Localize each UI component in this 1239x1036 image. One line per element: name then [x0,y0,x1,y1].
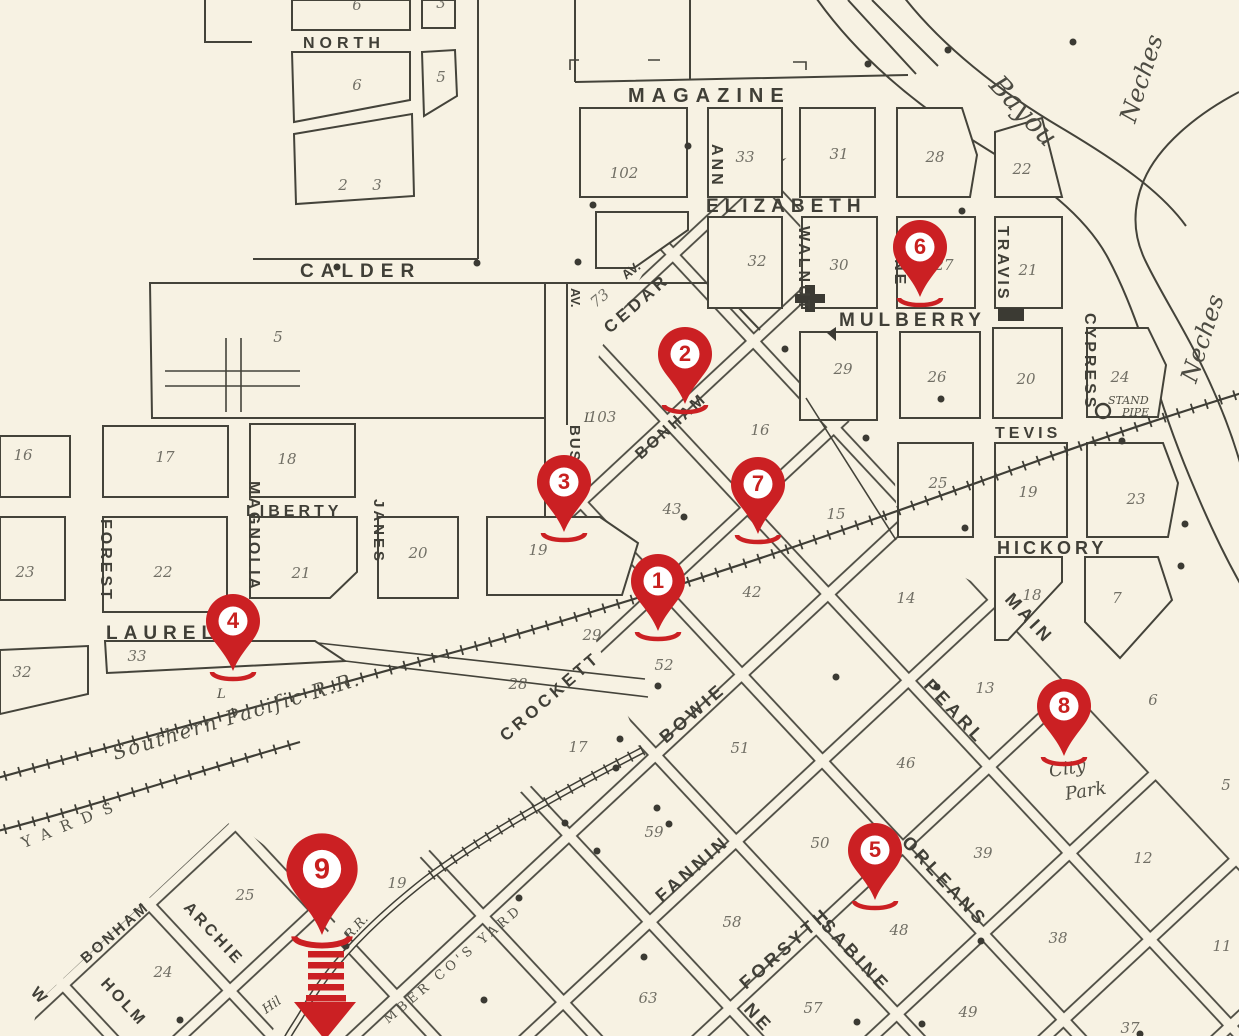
block-number: 3 [372,176,382,194]
block-number: 5 [273,328,283,346]
street-label-elizabeth: ELIZABETH [706,196,867,217]
block-number: 29 [581,626,602,644]
block-number: 18 [277,450,296,468]
map-dot [516,895,523,902]
svg-text:2: 2 [679,341,691,366]
block-number: 17 [568,738,588,756]
map-dot [562,820,569,827]
street-label-north: NORTH [303,35,385,52]
street-label-mulberry: MULBERRY [839,310,986,331]
map-dot [177,1017,184,1024]
map-dot [641,954,648,961]
block-number: 23 [14,563,34,581]
map-dot [945,47,952,54]
street-label-ann: ANN [708,144,725,188]
street-label-travis: TRAVIS [994,226,1011,301]
block-number: 7 [1112,589,1122,607]
block-number: 52 [654,656,673,674]
map-dot [655,683,662,690]
block-number: 59 [644,823,664,841]
street-label-bush-av: AV. [568,288,583,308]
block-number: 50 [810,834,830,852]
map-dot [959,208,966,215]
block-number: 30 [829,256,849,274]
block-number: 15 [826,505,845,523]
map-canvas[interactable]: NORTH CALDER MAGAZINE ELIZABETH MULBERRY… [0,0,1239,1036]
block-number: 21 [290,564,310,582]
block-number: 43 [661,500,681,518]
street-label-walnut: WALNUT [795,226,812,312]
map-dot [854,1019,861,1026]
map-dot [474,260,481,267]
map-dot [1070,39,1077,46]
svg-text:4: 4 [227,608,240,633]
street-label-hickory: HICKORY [997,538,1107,558]
map-dot [934,684,941,691]
map-dot [782,346,789,353]
map-dot [962,525,969,532]
block-number: 49 [957,1003,978,1021]
street-label-magazine: MAGAZINE [628,85,791,107]
svg-text:6: 6 [914,234,926,259]
street-label-magnolia: MAGNOLIA [245,481,262,592]
map-dot [685,143,692,150]
block-number: 17 [155,448,175,466]
street-label-tevis: TEVIS [995,425,1061,442]
map-dot [863,435,870,442]
map-dot [613,765,620,772]
map-dot [938,396,945,403]
svg-text:7: 7 [752,471,764,496]
map-dot [1182,521,1189,528]
block-number: 28 [507,675,527,693]
svg-text:8: 8 [1058,693,1070,718]
building-footprint [998,308,1024,321]
block-number: 3 [436,0,446,12]
block-number: 22 [1011,160,1031,178]
map-dot [1178,563,1185,570]
block-number: 33 [735,148,754,166]
map-dot [978,938,985,945]
block-number: 6 [1148,691,1158,709]
svg-text:9: 9 [314,853,330,885]
block-number: 51 [730,739,749,757]
block-number: 24 [1109,368,1129,386]
block-number: 18 [1022,586,1041,604]
map-dot [590,202,597,209]
street-label-laurel: LAUREL [106,623,219,644]
map-dot [666,821,673,828]
block-number: 32 [747,252,766,270]
map-dot [575,259,582,266]
block-number: 12 [1133,849,1152,867]
block-number: 16 [750,421,770,439]
block-number: 16 [13,446,33,464]
block-number: 24 [152,963,172,981]
map-dot [833,674,840,681]
map-dot [617,736,624,743]
map-dot [681,514,688,521]
block-number: 11 [1212,937,1231,955]
map-dot [481,997,488,1004]
block-number: 25 [927,474,947,492]
block-number: 19 [1018,483,1038,501]
street-label-calder: CALDER [300,261,421,282]
street-label-janes: JANES [370,499,387,564]
block-number: 42 [741,583,761,601]
block-number: 23 [1125,490,1145,508]
block-number: 63 [638,989,657,1007]
block-number: 5 [1221,776,1231,794]
block-number: 26 [926,368,947,386]
block-number: 20 [1015,370,1036,388]
block-number: 57 [803,999,823,1017]
block-number: 58 [722,913,741,931]
street-label-forest: FOREST [97,519,114,602]
map-dot [919,1021,926,1028]
standpipe-label-2: PIPE [1121,406,1149,419]
block-number: 2 [337,176,348,194]
map-dot [865,61,872,68]
map-dot [594,848,601,855]
block-number: 21 [1017,261,1037,279]
svg-text:3: 3 [558,469,570,494]
block-number: 39 [973,844,993,862]
block-number: 25 [234,886,254,904]
block-number: 6 [352,76,362,94]
block-number: 20 [407,544,428,562]
block-number: 46 [895,754,916,772]
historic-city-map: NORTH CALDER MAGAZINE ELIZABETH MULBERRY… [0,0,1239,1036]
block-number: 19 [528,541,548,559]
block-number: 19 [387,874,407,892]
block-number: 5 [436,68,446,86]
block-number: 6 [352,0,362,14]
svg-text:5: 5 [869,837,881,862]
map-dot [1119,438,1126,445]
street-label-cypress: CYPRESS [1081,313,1098,410]
map-dot [654,805,661,812]
block-number: 102 [610,164,639,182]
block-number: 22 [152,563,172,581]
block-number: 32 [12,663,31,681]
block-number: 28 [924,148,944,166]
block-number: 14 [896,589,915,607]
block-number: 38 [1048,929,1067,947]
svg-text:1: 1 [652,568,664,593]
block-number: 103 [588,408,617,426]
block-number: 48 [888,921,908,939]
block-number: 33 [127,647,146,665]
l-mark-2: L [216,687,226,702]
block-number: 13 [975,679,994,697]
block-number: 31 [829,145,848,163]
map-dot [334,264,341,271]
block-number: 29 [832,360,853,378]
